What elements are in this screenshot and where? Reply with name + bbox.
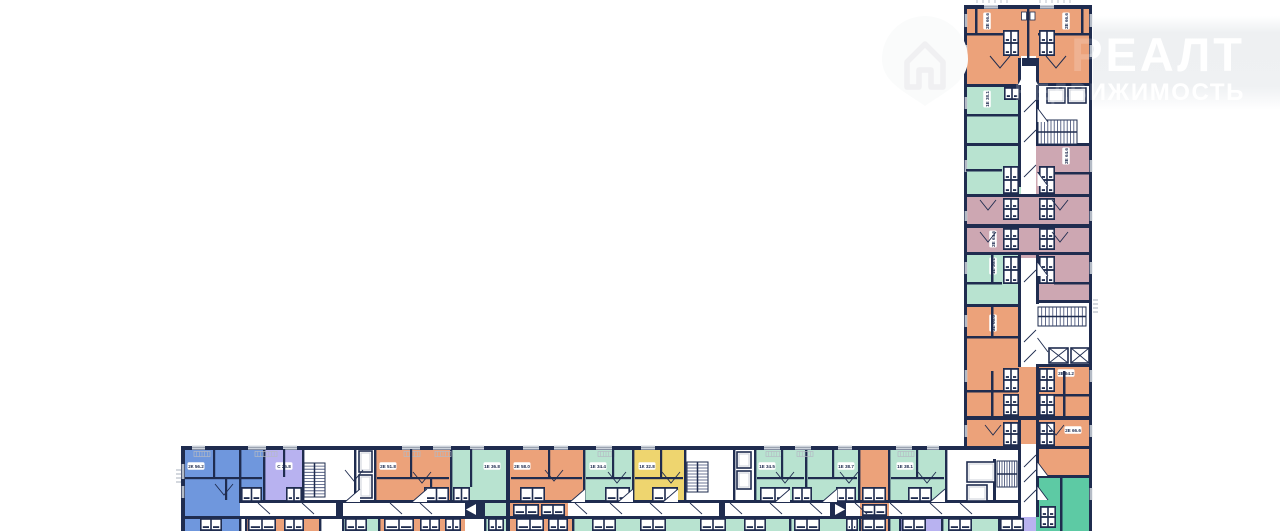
svg-text:2К 56.2: 2К 56.2 [188,464,204,469]
svg-text:2Е 64.6: 2Е 64.6 [1064,148,1069,164]
svg-text:2Е 64.2: 2Е 64.2 [1058,371,1074,376]
svg-text:2Е 66.6: 2Е 66.6 [985,13,990,29]
svg-text:2Е 66.6: 2Е 66.6 [1064,13,1069,29]
svg-text:РЕАЛТ: РЕАЛТ [1071,28,1245,81]
svg-text:2Е 58.0: 2Е 58.0 [514,464,530,469]
svg-text:1К 32.8: 1К 32.8 [639,464,655,469]
svg-text:1Е 38.7: 1Е 38.7 [838,464,854,469]
svg-text:1Е 34.5: 1Е 34.5 [759,464,775,469]
svg-text:1Е 34.4: 1Е 34.4 [590,464,606,469]
svg-text:2Е 66.6: 2Е 66.6 [1065,428,1081,433]
svg-text:2Е 51.8: 2Е 51.8 [380,464,396,469]
svg-text:1Е 38.1: 1Е 38.1 [897,464,913,469]
svg-text:1Е 38.1: 1Е 38.1 [985,91,990,107]
svg-text:1Е 36.8: 1Е 36.8 [484,464,500,469]
